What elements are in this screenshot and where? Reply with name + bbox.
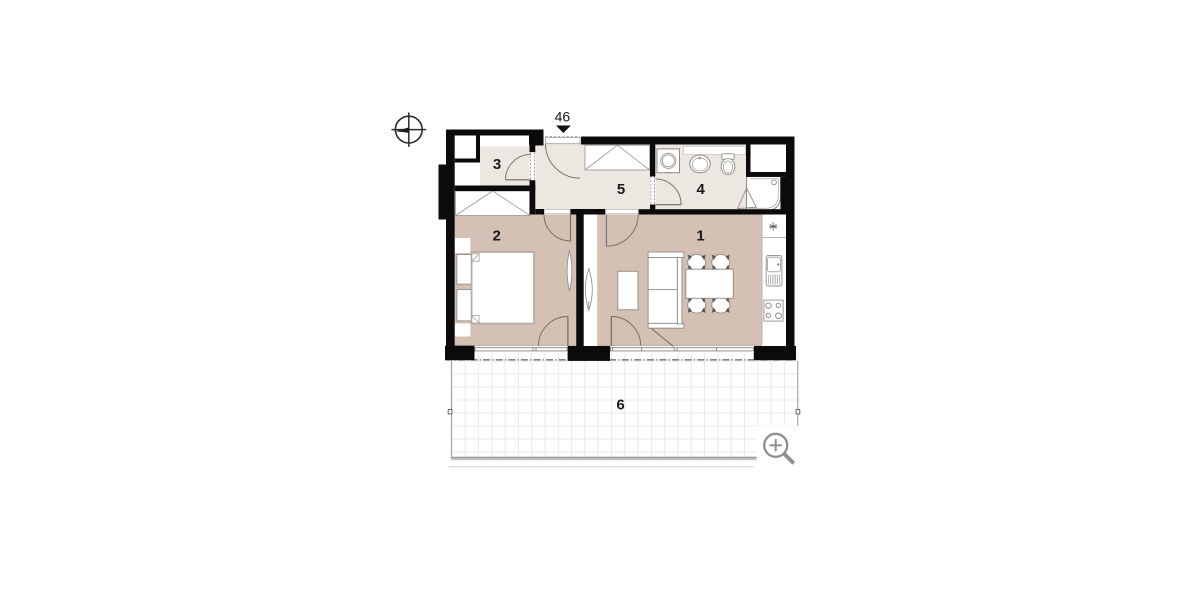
svg-text:5: 5 [617, 181, 625, 198]
svg-text:3: 3 [493, 156, 501, 173]
svg-text:4: 4 [697, 181, 706, 198]
svg-text:1: 1 [696, 228, 704, 245]
svg-text:46: 46 [555, 109, 571, 125]
svg-text:6: 6 [616, 397, 624, 414]
svg-text:2: 2 [493, 228, 501, 245]
